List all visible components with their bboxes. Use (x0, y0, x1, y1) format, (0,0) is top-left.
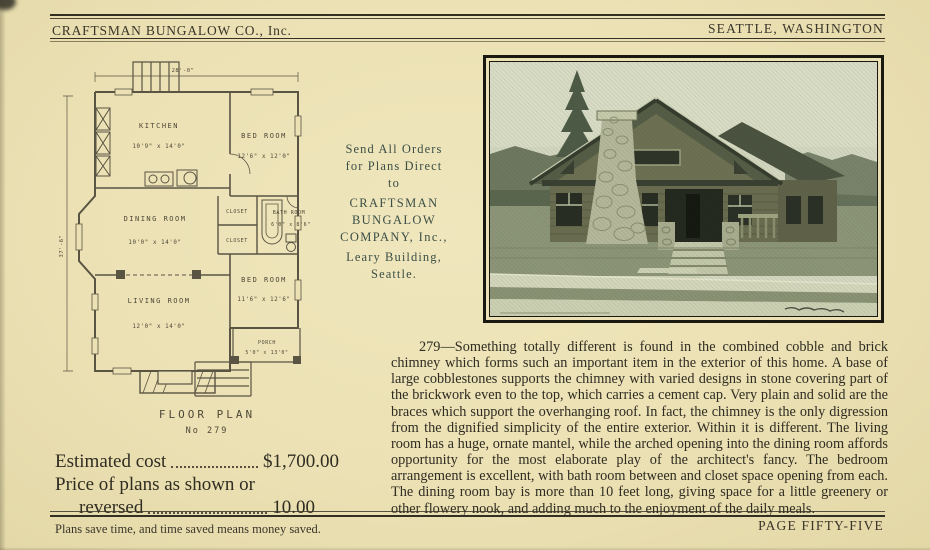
footer-rule (50, 515, 885, 517)
bedroom1-dims: 12'6" x 12'0" (237, 154, 290, 160)
bedroom2-dims: 11'6" x 12'6" (237, 297, 290, 303)
pricing-block: Estimated cost $1,700.00 Price of plans … (55, 450, 339, 519)
order-instructions: Send All Orders for Plans Direct to CRAF… (316, 141, 472, 283)
header-rule-thin (50, 41, 885, 42)
porch-label: PORCH (258, 340, 276, 346)
living-room-dims: 12'0" x 14'0" (132, 324, 185, 330)
order-line: for Plans Direct (316, 158, 472, 175)
dot-leader (148, 512, 267, 514)
estimated-cost-value: $1,700.00 (263, 450, 339, 473)
bedroom1-label: BED ROOM (241, 132, 287, 140)
dining-room-dims: 10'0" x 14'0" (128, 240, 181, 246)
company-name: CRAFTSMAN BUNGALOW CO., Inc. (52, 23, 292, 39)
order-line: Seattle. (316, 266, 472, 283)
top-rule-thin (50, 18, 885, 19)
catalog-page: CRAFTSMAN BUNGALOW CO., Inc. SEATTLE, WA… (0, 0, 930, 550)
order-line: COMPANY, Inc., (316, 229, 472, 246)
kitchen-dims: 10'9" x 14'0" (132, 144, 185, 150)
dining-room-label: DINING ROOM (124, 215, 187, 223)
floor-plan-number: No 279 (186, 426, 229, 436)
top-rule (50, 14, 885, 16)
plan-description: 279—Something totally different is found… (391, 339, 888, 517)
bathroom-label: BATH ROOM (273, 210, 306, 216)
floor-plan-drawing: 28'-0" 37'-6" KITCHEN 10'9" x 14'0" BED … (55, 56, 327, 440)
floor-plan-title: FLOOR PLAN (159, 408, 255, 421)
page-number: PAGE FIFTY-FIVE (758, 518, 884, 534)
bedroom2-label: BED ROOM (241, 276, 287, 284)
colonnade-post (192, 270, 201, 279)
fireplace (140, 371, 215, 393)
living-room-label: LIVING ROOM (128, 297, 191, 305)
plan-depth-dim: 37'-6" (59, 235, 65, 258)
company-location: SEATTLE, WASHINGTON (708, 21, 884, 37)
porch-dims: 5'0" x 13'0" (245, 350, 288, 356)
order-line: Send All Orders (316, 141, 472, 158)
colonnade-post (116, 270, 125, 279)
bungalow-photo (489, 61, 878, 317)
footer-slogan: Plans save time, and time saved means mo… (55, 522, 321, 537)
plans-price-label-line1: Price of plans as shown or (55, 473, 255, 496)
bathroom-dims: 6'0" x 8'6" (271, 222, 311, 228)
dot-leader (171, 466, 258, 468)
kitchen-label: KITCHEN (139, 122, 179, 130)
order-line: Leary Building, (316, 249, 472, 266)
header-rule (50, 38, 885, 39)
footer-rule-thin (50, 511, 885, 512)
plan-width-dim: 28'-0" (172, 68, 195, 74)
order-line: to (316, 175, 472, 192)
order-line: CRAFTSMAN BUNGALOW (316, 195, 472, 229)
photo-frame (483, 55, 884, 323)
plan-description-text: 279—Something totally different is found… (391, 339, 888, 517)
closet-upper-label: CLOSET (226, 209, 248, 215)
estimated-cost-label: Estimated cost (55, 450, 166, 473)
scan-edge (0, 0, 6, 550)
closet-lower-label: CLOSET (226, 238, 248, 244)
